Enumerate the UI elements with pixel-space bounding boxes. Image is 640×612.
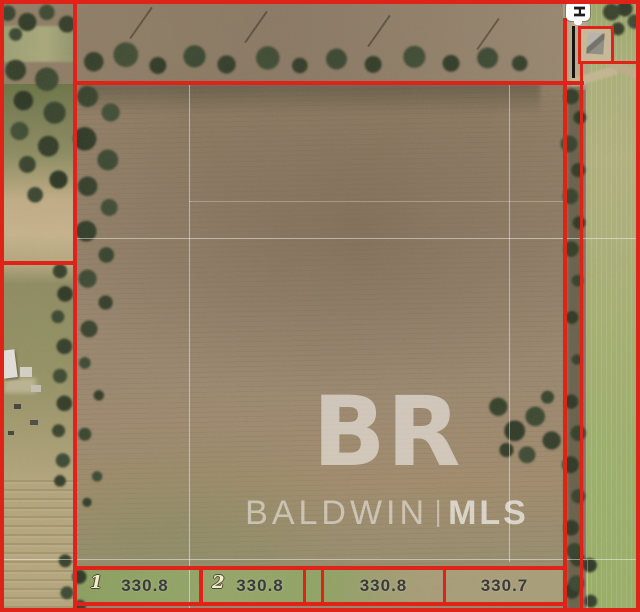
main-parcel-field (75, 84, 567, 570)
lot-frontage-value: 330.8 (360, 576, 408, 596)
boundary-line-east (563, 18, 567, 612)
vehicle (14, 404, 21, 409)
vehicle (8, 431, 14, 435)
lot-frontage-value: 330.7 (481, 576, 529, 596)
outbuilding-boundary (578, 26, 614, 64)
survey-gridline-horizontal (75, 238, 640, 239)
lot-frontage-value: 330.8 (121, 576, 169, 596)
vehicle (30, 420, 38, 425)
tree-cluster (0, 0, 78, 44)
boundary-line-west (73, 0, 77, 612)
highway-shield-icon: H (566, 1, 590, 21)
lot-measurement-box: 1 330.8 (77, 570, 199, 602)
tree-cluster (80, 32, 538, 86)
survey-gridline-horizontal (189, 201, 567, 202)
tree-cluster (560, 540, 608, 612)
lot-number: 2 (212, 574, 225, 592)
highway-shield-tab (574, 20, 582, 25)
highway-shield-glyph: H (571, 5, 586, 18)
boundary-line-north (73, 81, 584, 85)
tree-cluster (486, 378, 568, 474)
tree-line (556, 86, 592, 612)
lot-measurement-box: 330.8 (324, 570, 443, 602)
lot-number: 1 (90, 574, 103, 592)
survey-gridline-horizontal (0, 559, 640, 560)
lot-measurement-box: 2 330.8 (203, 570, 303, 602)
road-centerline (572, 26, 575, 78)
lot-strip-bottom-line (73, 602, 567, 606)
field-right-strip (586, 0, 640, 612)
lot-frontage-value: 330.8 (236, 576, 284, 596)
survey-gridline-vertical (587, 560, 588, 612)
tree-shadow-band (80, 84, 540, 114)
house-roof (20, 367, 32, 377)
aerial-parcel-map: 1 330.8 2 330.8 330.8 330.7 H BR BALDWIN… (0, 0, 640, 612)
lot-divider (303, 566, 306, 606)
boundary-line-road-east (580, 62, 583, 612)
survey-gridline-vertical (189, 84, 190, 612)
boundary-line (578, 61, 640, 64)
lot-measurement-box: 330.7 (446, 570, 563, 602)
survey-gridline-vertical (509, 84, 510, 562)
boundary-line (0, 261, 77, 265)
shed-roof (31, 385, 41, 392)
